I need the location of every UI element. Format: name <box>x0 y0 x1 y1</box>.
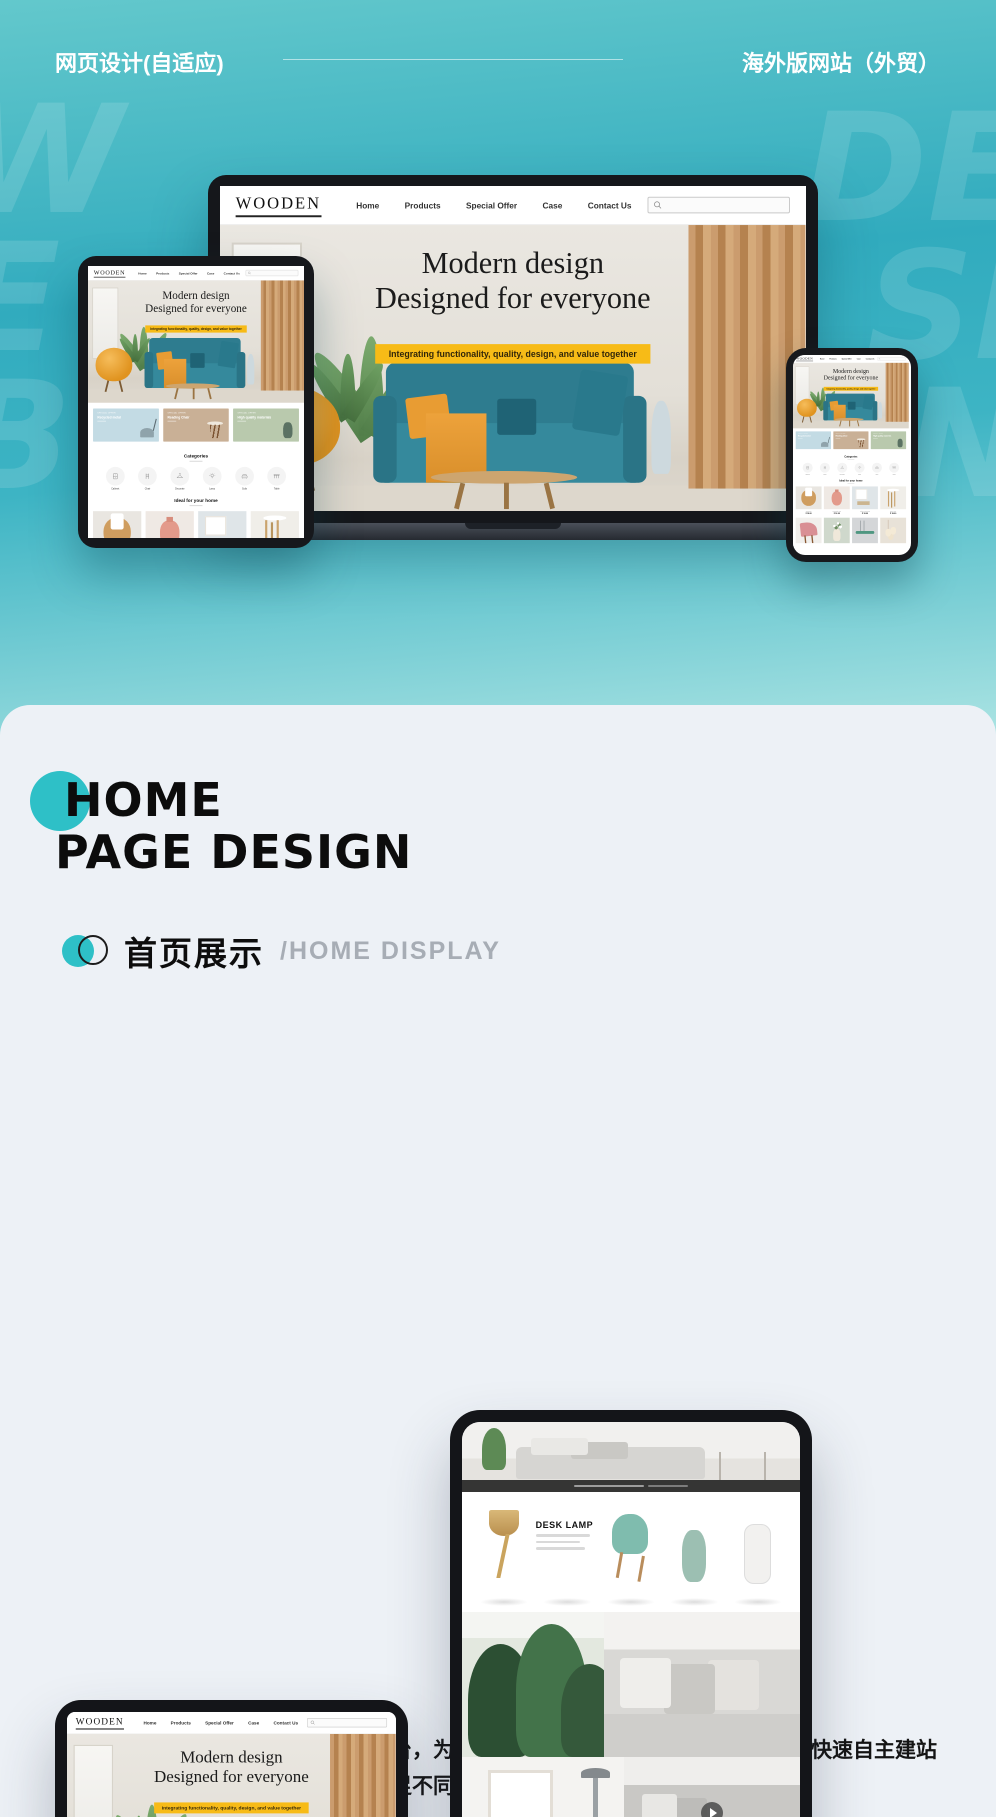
nav-item-home[interactable]: Home <box>138 271 147 275</box>
nav-item-products[interactable]: Products <box>830 358 837 360</box>
nav-item-case[interactable]: Case <box>857 358 861 360</box>
product-image-green-pendant[interactable] <box>852 518 878 543</box>
hero-title: Modern design Designed for everyone <box>793 367 909 381</box>
header-right-title: 海外版网站（外贸） <box>742 46 940 78</box>
search-input[interactable] <box>246 270 299 276</box>
site-menu: Home Products Special Offer Case Contact… <box>820 358 878 360</box>
vase-illustration <box>283 422 292 438</box>
subtitle-row: 首页展示 /HOME DISPLAY <box>62 927 501 975</box>
categories-title: Categories <box>793 455 909 458</box>
subtitle-english: /HOME DISPLAY <box>280 937 501 966</box>
site-navbar: WOODEN Home Products Special Offer Case … <box>793 355 909 363</box>
vase-illustration <box>898 439 903 447</box>
stool-illustration <box>857 438 865 447</box>
hero-banner: Integrating functionality, quality, desi… <box>154 1802 309 1813</box>
sofa-icon <box>875 466 879 470</box>
sofa-icon <box>240 472 248 480</box>
nav-item-contact-us[interactable]: Contact Us <box>588 200 632 210</box>
product-card-cupholder[interactable]: Cupholder $ 18.00 <box>93 511 141 538</box>
nav-item-products[interactable]: Products <box>171 1720 191 1725</box>
promo-card-recycled-metal[interactable]: SPECIAL OFFER Recycled metal <box>796 431 831 449</box>
site-logo: WOODEN <box>236 193 321 216</box>
promo-cards: SPECIAL OFFER Recycled metal SPECIAL OFF… <box>88 403 304 448</box>
green-vase-product[interactable] <box>663 1504 727 1612</box>
hero-banner: Integrating functionality, quality, desi… <box>145 325 247 332</box>
product-image-pink-chair[interactable] <box>796 518 822 543</box>
nav-item-contact-us[interactable]: Contact Us <box>224 271 240 275</box>
nav-item-contact-us[interactable]: Contact Us <box>273 1720 298 1725</box>
category-chair[interactable]: Chair <box>819 463 831 476</box>
nav-item-home[interactable]: Home <box>143 1720 156 1725</box>
nav-item-special-offer[interactable]: Special Offer <box>466 200 517 210</box>
art-lamp-photo <box>462 1757 624 1817</box>
tall-phone-mockup: DESK LAMP <box>450 1410 812 1817</box>
table-icon <box>273 472 281 480</box>
desk-lamp-section: DESK LAMP <box>462 1492 800 1612</box>
ideal-section: Ideal for your home <box>793 475 909 483</box>
search-input[interactable] <box>307 1718 387 1727</box>
desk-lamp-product[interactable] <box>472 1504 536 1612</box>
site-navbar: WOODEN Home Products Special Offer Case … <box>88 266 304 280</box>
plants-photo <box>462 1612 604 1757</box>
nav-item-case[interactable]: Case <box>543 200 563 210</box>
overlapping-circles-icon <box>62 935 110 967</box>
promo-card-reading-chair[interactable]: SPECIAL OFFER Reading Chair <box>163 409 229 442</box>
site-menu: Home Products Special Offer Case Contact… <box>138 271 245 275</box>
nav-item-special-offer[interactable]: Special Offer <box>205 1720 234 1725</box>
site-menu: Home Products Special Offer Case Contact… <box>143 1720 307 1725</box>
category-table[interactable]: Table <box>265 467 288 490</box>
category-cabinet[interactable]: Cabinet <box>104 467 127 490</box>
hero-title: Modern design Designed for everyone <box>67 1747 396 1786</box>
tablet-mockup: WOODEN Home Products Special Offer Case … <box>78 256 314 548</box>
bulb-icon <box>857 466 861 470</box>
ideal-section: Ideal for your home <box>88 490 304 506</box>
promo-card-reading-chair[interactable]: SPECIAL OFFER Reading Chair <box>833 431 868 449</box>
hero-section: Modern design Designed for everyone Inte… <box>67 1734 396 1817</box>
search-icon <box>310 1720 315 1725</box>
stool-illustration <box>207 422 223 439</box>
product-card-kitchen-cupboard[interactable]: Kitchen Cupboard $ 18.00 <box>198 511 246 538</box>
tall-phone-screen: DESK LAMP <box>462 1422 800 1817</box>
product-grid-row2 <box>793 515 909 546</box>
search-icon <box>879 358 881 360</box>
product-card-minimalist-vase[interactable]: Minimalist vase $ 18.00 <box>146 511 194 538</box>
photo-row-art-video <box>462 1757 800 1817</box>
site-logo: WOODEN <box>796 356 813 361</box>
search-input[interactable] <box>647 197 789 214</box>
poster-header: 网页设计(自适应) 海外版网站（外贸） <box>0 44 996 84</box>
product-card-kitchen-cupboard[interactable]: Kitchen Cupboard $ 18.00 <box>852 486 878 514</box>
nav-item-contact-us[interactable]: Contact Us <box>866 358 875 360</box>
lamp-illustration <box>821 442 828 447</box>
teal-hero-band: WEB DESIGN 网页设计(自适应) 海外版网站（外贸） WOODEN Ho… <box>0 0 996 740</box>
categories-title: Categories <box>88 453 304 458</box>
chair-icon <box>144 472 152 480</box>
showcase-section: DESIGN HOME PAGE DESIGN 首页展示 /HOME DISPL… <box>0 705 996 1817</box>
hero-title: Modern design Designed for everyone <box>88 289 304 315</box>
product-grid: Cupholder $ 18.00 Minimalist vase $ 18.0… <box>793 484 909 516</box>
large-tablet-mockup: WOODEN Home Products Special Offer Case … <box>55 1700 408 1817</box>
ideal-title: Ideal for your home <box>88 497 304 502</box>
promo-card-high-quality[interactable]: SPECIAL OFFER High quality materials <box>871 431 906 449</box>
cabinet-icon <box>111 472 119 480</box>
product-image-hanging-lamps[interactable] <box>880 518 906 543</box>
gray-sofa-photo <box>604 1612 800 1757</box>
site-navbar: WOODEN Home Products Special Offer Case … <box>67 1712 396 1734</box>
promo-cards: SPECIAL OFFER Recycled metal SPECIAL OFF… <box>793 428 909 452</box>
nav-item-special-offer[interactable]: Special Offer <box>179 271 198 275</box>
hero-banner: Integrating functionality, quality, desi… <box>375 344 650 364</box>
hanger-icon <box>176 472 184 480</box>
nav-item-special-offer[interactable]: Special Offer <box>842 358 852 360</box>
cabinet-icon <box>805 466 809 470</box>
hero-section: Modern design Designed for everyone Inte… <box>88 280 304 402</box>
category-table[interactable]: Table <box>888 463 900 476</box>
category-chair[interactable]: Chair <box>136 467 159 490</box>
nav-item-case[interactable]: Case <box>248 1720 259 1725</box>
hanger-icon <box>840 466 844 470</box>
site-navbar: WOODEN Home Products Special Offer Case … <box>220 186 806 225</box>
search-icon <box>248 271 251 274</box>
category-lamp[interactable]: Lamp <box>853 463 865 476</box>
nav-item-home[interactable]: Home <box>356 200 379 210</box>
category-sofa[interactable]: Sofa <box>233 467 256 490</box>
nav-item-products[interactable]: Products <box>405 200 441 210</box>
subtitle-chinese: 首页展示 <box>124 927 264 975</box>
wooden-site-page: WOODEN Home Products Special Offer Case … <box>67 1712 396 1817</box>
search-icon <box>653 201 662 210</box>
desk-lamp-text: DESK LAMP <box>536 1504 600 1612</box>
promo-card-recycled-metal[interactable]: SPECIAL OFFER Recycled metal <box>93 409 159 442</box>
photo-caption-strip <box>462 1480 800 1492</box>
chair-icon <box>823 466 827 470</box>
search-input[interactable] <box>878 357 906 360</box>
bulb-icon <box>208 472 216 480</box>
product-card-baby-chair[interactable]: Baby chair $ 18.00 <box>880 486 906 514</box>
category-sofa[interactable]: Sofa <box>871 463 883 476</box>
phone-mockup: WOODEN Home Products Special Offer Case … <box>786 348 918 562</box>
category-lamp[interactable]: Lamp <box>201 467 224 490</box>
site-logo: WOODEN <box>94 269 126 278</box>
product-image-flower-vase[interactable] <box>824 518 850 543</box>
poster: WEB DESIGN 网页设计(自适应) 海外版网站（外贸） WOODEN Ho… <box>0 0 996 1817</box>
promo-card-high-quality[interactable]: SPECIAL OFFER High quality materials <box>233 409 299 442</box>
category-decorate[interactable]: Decorate <box>168 467 191 490</box>
wooden-site-page: WOODEN Home Products Special Offer Case … <box>88 266 304 538</box>
header-left-title: 网页设计(自适应) <box>55 46 224 78</box>
product-card-minimalist-vase[interactable]: Minimalist vase $ 18.00 <box>824 486 850 514</box>
product-card-baby-chair[interactable]: Baby chair $ 18.00 <box>251 511 299 538</box>
teal-chair-product[interactable] <box>599 1504 663 1612</box>
site-menu: Home Products Special Offer Case Contact… <box>356 200 647 210</box>
category-cabinet[interactable]: Cabinet <box>801 463 813 476</box>
wooden-site-page: WOODEN Home Products Special Offer Case … <box>793 355 909 546</box>
header-divider <box>283 59 623 60</box>
nav-item-case[interactable]: Case <box>207 271 214 275</box>
category-decorate[interactable]: Decorate <box>836 463 848 476</box>
product-grid: Cupholder $ 18.00 Minimalist vase $ 18.0… <box>88 506 304 538</box>
section-title: HOME PAGE DESIGN <box>64 775 412 878</box>
sofa-video-panel <box>624 1757 800 1817</box>
photo-row-plants-sofa <box>462 1612 800 1757</box>
hero-section: Modern design Designed for everyone Inte… <box>793 363 909 429</box>
air-purifier-product[interactable] <box>726 1504 790 1612</box>
site-logo: WOODEN <box>76 1716 124 1729</box>
lamp-illustration <box>140 428 154 437</box>
categories-section: Categories Cabinet Chair Decorate Lamp <box>88 447 304 490</box>
nav-item-home[interactable]: Home <box>820 358 825 360</box>
hero-banner: Integrating functionality, quality, desi… <box>824 387 878 391</box>
play-button[interactable] <box>701 1802 723 1817</box>
ideal-title: Ideal for your home <box>793 479 909 482</box>
nav-item-products[interactable]: Products <box>156 271 169 275</box>
hero-photo-living-room <box>462 1422 800 1492</box>
product-card-cupholder[interactable]: Cupholder $ 18.00 <box>796 486 822 514</box>
categories-section: Categories Cabinet Chair Decorate Lamp <box>793 452 909 475</box>
table-icon <box>892 466 896 470</box>
